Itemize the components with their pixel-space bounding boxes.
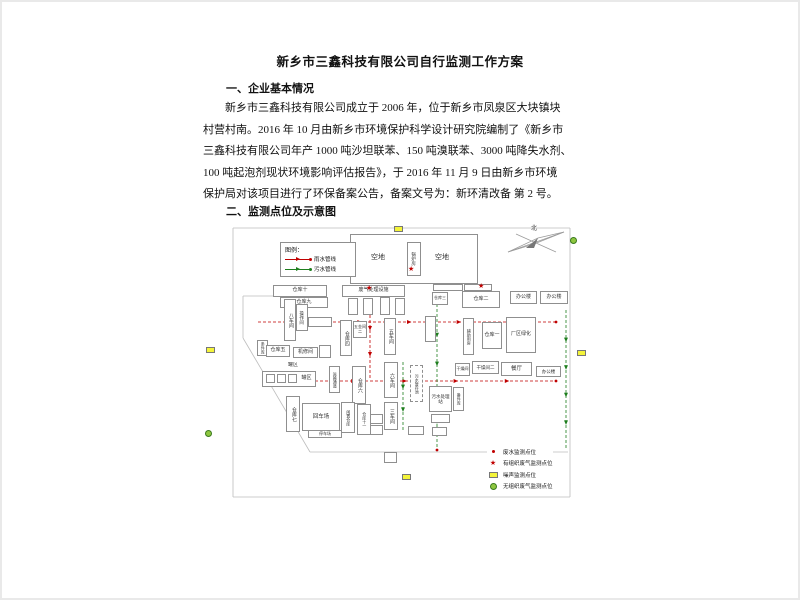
map-building: 仓库四	[340, 320, 352, 356]
map-building: 仓库十	[273, 285, 327, 297]
section-2-heading: 二、监测点位及示意图	[226, 203, 336, 219]
map-building	[425, 316, 436, 342]
yellow-rect-marker	[394, 226, 403, 232]
monitoring-legend-label: 无组织废气监测点位	[503, 482, 553, 490]
map-building: 操作间	[296, 304, 308, 331]
map-building: 仓库九	[280, 297, 328, 308]
map-building	[464, 284, 492, 291]
paragraph-line: 100 吨起泡剂现状环境影响评估报告》，于 2016 年 11 月 9 日由新乡…	[203, 163, 615, 185]
map-building	[384, 452, 397, 463]
map-building: 八车间	[284, 299, 296, 341]
yellow-rect-marker	[206, 347, 215, 353]
pipeline-legend-item: 雨水管线	[285, 254, 351, 264]
green-circle-marker	[205, 430, 212, 437]
page-border	[0, 0, 800, 600]
monitoring-legend-label: 有组织废气监测点位	[503, 459, 553, 467]
map-building: 仓库五	[266, 345, 290, 357]
map-building: 三车间	[384, 402, 398, 430]
pipeline-legend: 图例： 雨水管线污水管线	[280, 242, 356, 277]
map-building: 办公楼	[536, 366, 561, 377]
section-1-heading: 一、企业基本情况	[226, 80, 314, 96]
map-building	[431, 414, 450, 423]
map-building: 仓库六	[352, 366, 366, 404]
map-building	[288, 374, 297, 383]
site-map-lines	[0, 0, 800, 600]
red-star-marker: ★	[408, 266, 414, 273]
map-building	[277, 374, 286, 383]
map-building	[432, 427, 447, 436]
green-circle-marker	[570, 237, 577, 244]
document-title: 新乡市三鑫科技有限公司自行监测工作方案	[0, 51, 800, 70]
pipeline-legend-label: 雨水管线	[314, 255, 336, 263]
map-building: 干燥间二	[472, 361, 499, 374]
pipeline-legend-label: 污水管线	[314, 265, 336, 273]
map-building: 停车场	[308, 430, 342, 438]
map-building: 仓库十一	[357, 404, 371, 435]
map-building: 机修间	[293, 347, 318, 358]
red-star-marker: ★	[366, 285, 372, 292]
monitoring-legend: 废水监测点位★有组织废气监测点位噪声监测点位无组织废气监测点位	[487, 446, 553, 492]
site-map-buildings: 空地锅炉房空地仓库十仓库九八车间操作间条件库仓库五机修间废气处理设施仓库四五金间…	[0, 0, 800, 600]
map-building	[350, 234, 478, 284]
map-building: 仓库七	[286, 396, 300, 432]
map-building: 空地	[428, 251, 456, 263]
map-building	[370, 425, 383, 435]
map-building	[370, 414, 383, 424]
map-building: 仓库二	[462, 291, 500, 308]
yellow-rect-legend-icon	[489, 472, 498, 478]
map-building: 六车间	[384, 362, 398, 398]
paragraph-line: 三鑫科技有限公司年产 1000 吨沙坦联苯、150 吨溴联苯、3000 吨降失水…	[203, 141, 615, 163]
green-circle-legend-icon	[490, 483, 497, 490]
monitoring-legend-label: 噪声监测点位	[503, 471, 536, 479]
compass-rose-icon: 北	[504, 222, 568, 266]
map-building: 废气处理设施	[342, 285, 405, 297]
map-building: 五金间二	[353, 321, 367, 338]
map-building: 锅炉房	[407, 242, 421, 276]
pipeline-legend-title: 图例：	[285, 245, 351, 254]
map-building	[363, 298, 373, 315]
red-star-marker: ★	[478, 283, 484, 290]
map-building	[262, 371, 316, 387]
map-building: 罐区	[286, 362, 300, 370]
map-building	[266, 374, 275, 383]
map-building: 污水暂存池	[410, 365, 423, 402]
map-building: 五车间	[384, 318, 396, 355]
red-dot-legend-icon	[492, 450, 495, 453]
monitoring-legend-item: 废水监测点位	[487, 446, 553, 458]
map-building: 备件库	[453, 387, 464, 411]
map-building	[348, 298, 358, 315]
pipeline-line-swatch	[285, 269, 311, 270]
map-building: 办公楼	[540, 291, 568, 304]
red-star-legend-icon: ★	[490, 460, 496, 467]
yellow-rect-marker	[577, 350, 586, 356]
map-building: 辅助用房	[463, 318, 474, 355]
compass-north-label: 北	[531, 224, 537, 232]
pipeline-line-swatch	[285, 259, 311, 260]
map-building: 仓库一	[482, 322, 502, 349]
paragraph-line: 村营村南。2016 年 10 月由新乡市环境保护科学设计研究院编制了《新乡市	[203, 120, 615, 142]
monitoring-legend-item: 噪声监测点位	[487, 469, 553, 481]
map-building	[308, 317, 332, 327]
yellow-rect-marker	[402, 474, 411, 480]
map-building: 污水处理站	[429, 386, 452, 412]
map-building: 回车场	[302, 403, 340, 431]
paragraph-line: 新乡市三鑫科技有限公司成立于 2006 年，位于新乡市凤泉区大块镇块	[203, 98, 615, 120]
map-building	[380, 297, 390, 315]
monitoring-legend-label: 废水监测点位	[503, 448, 536, 456]
map-building: 仓库三	[432, 292, 448, 305]
monitoring-legend-item: 无组织废气监测点位	[487, 481, 553, 493]
map-building	[395, 298, 405, 315]
map-building: 干燥间	[455, 363, 470, 376]
map-building: 空地	[364, 251, 392, 263]
map-building: 条件库	[257, 340, 268, 356]
site-map-markers: ★★★	[0, 0, 800, 600]
pipeline-legend-item: 污水管线	[285, 264, 351, 274]
map-building: 闲置仓库	[341, 402, 355, 433]
map-building	[433, 284, 463, 291]
map-building: 餐厅	[501, 362, 532, 376]
monitoring-legend-item: ★有组织废气监测点位	[487, 458, 553, 470]
map-building: 厂区绿化	[506, 317, 536, 353]
company-intro-paragraph: 新乡市三鑫科技有限公司成立于 2006 年，位于新乡市凤泉区大块镇块村营村南。2…	[203, 98, 615, 206]
map-building	[408, 426, 424, 435]
map-building: 罐区	[300, 374, 313, 384]
map-building	[319, 345, 331, 358]
map-building: 运输通道	[329, 366, 340, 393]
map-building: 办公楼	[510, 291, 537, 304]
